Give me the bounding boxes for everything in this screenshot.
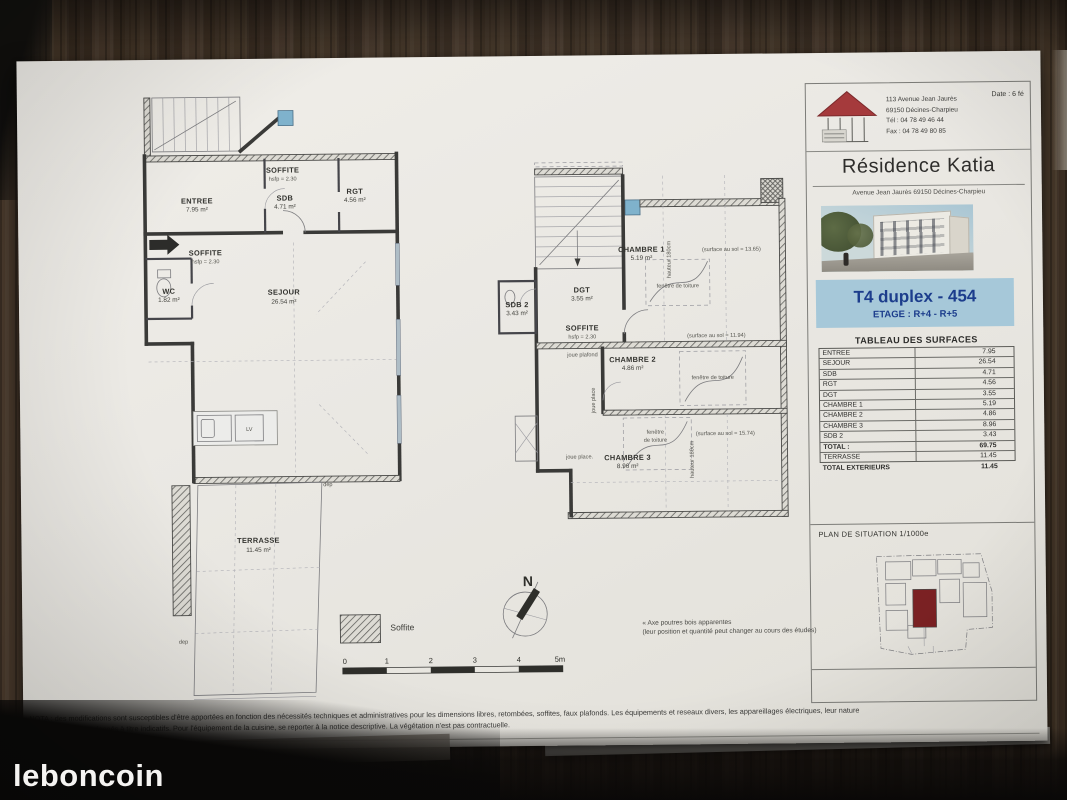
- diagonal-wall: [240, 119, 278, 151]
- dimension-line: [149, 359, 397, 362]
- svg-text:hauteur 180cm: hauteur 180cm: [689, 440, 695, 478]
- svg-text:3.55 m²: 3.55 m²: [571, 295, 593, 302]
- skylight-label: fenêtre: [647, 430, 664, 436]
- roof-line: [571, 480, 782, 482]
- surfaces-row: RGT4.56: [820, 377, 1014, 389]
- svg-text:4.71 m²: 4.71 m²: [274, 203, 296, 210]
- svg-text:2: 2: [429, 656, 433, 665]
- door-arc: [283, 210, 305, 232]
- svg-text:joue plafond: joue plafond: [566, 352, 598, 358]
- svg-text:4: 4: [517, 655, 521, 664]
- svg-text:4.56 m²: 4.56 m²: [344, 197, 366, 204]
- staircase-upper: [535, 162, 624, 269]
- situation-title: PLAN DE SITUATION 1/1000e: [818, 529, 928, 539]
- room-label: WC: [162, 287, 175, 296]
- upper-level-plan: CHAMBRE 1 5.19 m² (surface au sol = 13.6…: [472, 158, 816, 542]
- photo-person: [843, 253, 848, 266]
- walls-upper: [498, 174, 789, 519]
- svg-text:hsfp = 2.30: hsfp = 2.30: [269, 176, 297, 182]
- svg-text:(surface au sol = 11.94): (surface au sol = 11.94): [687, 333, 746, 340]
- room-label: SOFFITE: [189, 248, 222, 257]
- legend-soffite-label: Soffite: [390, 622, 414, 632]
- duct-marker-upper: [625, 200, 640, 215]
- room-label: DGT: [574, 285, 591, 294]
- skylight-label: de toiture: [644, 438, 667, 444]
- skylight-label: fenêtre de toiture: [692, 375, 734, 381]
- svg-text:0: 0: [343, 657, 347, 666]
- roof-line: [665, 415, 666, 512]
- dimension-line: [293, 242, 295, 472]
- surfaces-table: TABLEAU DES SURFACES ENTREE7.95 SEJOUR26…: [818, 334, 1015, 474]
- room-label: CHAMBRE 1: [618, 245, 665, 254]
- door-arc: [192, 283, 214, 305]
- photo-building-side: [949, 216, 969, 258]
- builder-address: 113 Avenue Jean Jaurès 69150 Décines-Cha…: [886, 95, 958, 139]
- room-label: CHAMBRE 2: [609, 355, 656, 364]
- surfaces-row-total: TOTAL :69.75: [820, 440, 1014, 452]
- surfaces-row: CHAMBRE 38.96: [820, 419, 1014, 431]
- staircase-lower: [144, 97, 241, 156]
- kitchen-counter: LV: [193, 411, 277, 446]
- surfaces-row-exterior-total: TOTAL EXTERIEURS11.45: [820, 462, 1016, 473]
- room-label: CHAMBRE 3: [604, 453, 651, 462]
- terrace: TERRASSE 11.45 m² dep dep: [172, 482, 335, 700]
- dishwasher-label: LV: [246, 427, 253, 433]
- legend-soffite: Soffite: [338, 610, 468, 654]
- surfaces-row: SEJOUR26.54: [820, 356, 1014, 368]
- room-label: SDB 2: [505, 300, 528, 309]
- highlighted-building: [913, 589, 937, 627]
- svg-text:5.19 m²: 5.19 m²: [631, 255, 653, 262]
- roof-line: [727, 414, 728, 511]
- svg-text:4.86 m²: 4.86 m²: [622, 365, 644, 372]
- svg-text:7.95 m²: 7.95 m²: [186, 206, 208, 213]
- svg-text:1.82 m²: 1.82 m²: [158, 297, 180, 304]
- paper-edge-highlight: [1051, 50, 1067, 170]
- unit-band: T4 duplex - 454 ETAGE : R+4 - R+5: [816, 278, 1014, 328]
- surfaces-row: SDB 23.43: [820, 429, 1014, 441]
- svg-text:8.96 m²: 8.96 m²: [617, 463, 639, 470]
- soffite-swatch-icon: [340, 615, 380, 643]
- surfaces-row: TERRASSE11.45: [821, 450, 1015, 462]
- surfaces-row: CHAMBRE 24.86: [820, 408, 1014, 420]
- surfaces-row: DGT3.55: [820, 388, 1014, 400]
- room-label: TERRASSE: [237, 536, 280, 545]
- dep-label: dep: [323, 482, 332, 488]
- svg-text:hsfp = 2.30: hsfp = 2.30: [568, 334, 596, 340]
- surfaces-row: CHAMBRE 15.19: [820, 398, 1014, 410]
- door-arc: [624, 310, 648, 334]
- room-labels-lower: SOFFITE hsfp = 2.30 SDB 4.71 m² RGT 4.56…: [157, 165, 367, 307]
- building-photo: [821, 204, 974, 272]
- svg-text:N: N: [523, 573, 533, 589]
- surfaces-row: SDB4.71: [820, 367, 1014, 379]
- entrance-arrow-icon: [149, 235, 179, 255]
- svg-text:(surface au sol = 13.65): (surface au sol = 13.65): [702, 247, 761, 254]
- svg-text:hauteur 180cm: hauteur 180cm: [666, 241, 672, 279]
- svg-text:joue place.: joue place.: [565, 454, 594, 460]
- photo-scene: LV SOFFITE hsfp = 2.30 SDB 4.71 m² RGT 4…: [0, 0, 1067, 800]
- builder-logo: [814, 89, 881, 148]
- dimension-line: [316, 262, 367, 315]
- duct-marker-lower: [278, 110, 293, 125]
- svg-text:26.54 m²: 26.54 m²: [271, 298, 296, 305]
- leboncoin-logo: leboncoin: [13, 758, 164, 794]
- room-label: SOFFITE: [266, 165, 299, 174]
- svg-text:11.45 m²: 11.45 m²: [246, 547, 271, 554]
- room-labels-upper: CHAMBRE 1 5.19 m² (surface au sol = 13.6…: [505, 240, 764, 480]
- skylight-label: fenêtre de toiture: [657, 283, 699, 289]
- svg-text:5m: 5m: [555, 655, 566, 664]
- svg-text:hsfp = 2.30: hsfp = 2.30: [192, 259, 220, 265]
- floorplan-sheet: LV SOFFITE hsfp = 2.30 SDB 4.71 m² RGT 4…: [16, 51, 1047, 752]
- svg-text:3: 3: [473, 656, 477, 665]
- door-arc: [603, 382, 621, 400]
- dep-label: dep: [179, 640, 188, 646]
- stair-arrow-icon: [575, 258, 581, 266]
- unit-floor: ETAGE : R+4 - R+5: [873, 308, 957, 320]
- photo-tree: [847, 223, 873, 247]
- scale-bar: 0 1 2 3 4 5m: [341, 652, 581, 683]
- room-label: SOFFITE: [566, 323, 599, 332]
- date-label: Date : 6 fé: [991, 91, 1030, 692]
- beam-note: « Axe poutres bois apparentes (leur posi…: [642, 617, 816, 637]
- svg-text:3.43 m²: 3.43 m²: [506, 310, 528, 317]
- dimension-line: [317, 402, 368, 455]
- svg-text:(surface au sol = 15.74): (surface au sol = 15.74): [696, 431, 755, 438]
- room-label: ENTREE: [181, 196, 213, 205]
- svg-text:joue place: joue place: [591, 388, 597, 415]
- room-label: SEJOUR: [268, 287, 301, 296]
- svg-text:1: 1: [385, 657, 389, 666]
- photo-building: [873, 211, 951, 262]
- room-label: SDB: [277, 193, 294, 202]
- unit-title: T4 duplex - 454: [853, 286, 976, 307]
- title-block: 113 Avenue Jean Jaurès 69150 Décines-Cha…: [805, 81, 1037, 703]
- room-label: RGT: [346, 187, 363, 196]
- north-compass-icon: N: [494, 572, 559, 643]
